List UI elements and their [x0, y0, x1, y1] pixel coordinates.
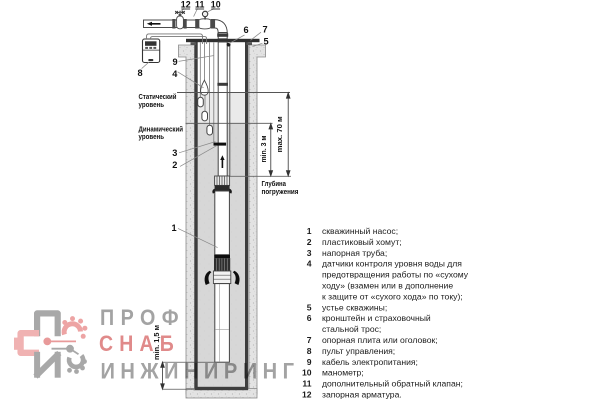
svg-text:СНАБ: СНАБ — [99, 331, 180, 356]
svg-text:ИНЖИНИРИНГ: ИНЖИНИРИНГ — [101, 358, 300, 383]
svg-text:ПРОФ: ПРОФ — [100, 305, 185, 330]
